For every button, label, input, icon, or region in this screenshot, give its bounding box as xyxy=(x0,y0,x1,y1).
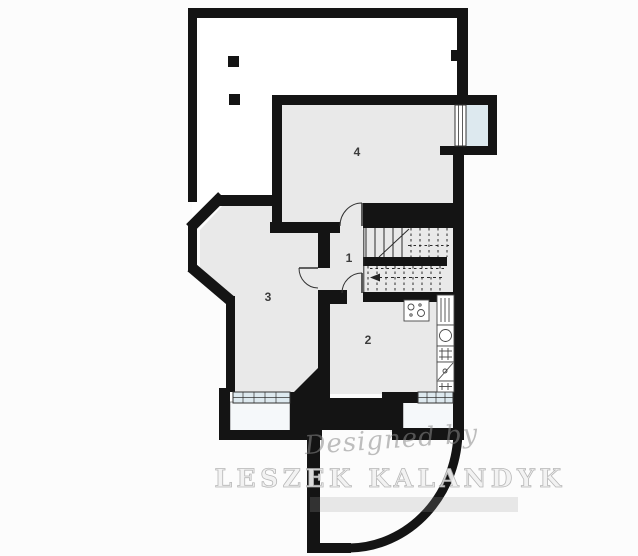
wall-room4-left xyxy=(272,95,282,222)
wall-notch xyxy=(451,50,457,61)
wall-right-lower xyxy=(453,146,464,436)
terrace-post-1 xyxy=(228,56,239,67)
room-label-1: 1 xyxy=(346,251,353,265)
dishwasher-icon xyxy=(437,362,454,381)
cabinet-icon xyxy=(437,381,454,392)
wall-hallway-bottom-stub xyxy=(318,290,347,304)
hob-icon xyxy=(437,346,454,362)
room-label-2: 2 xyxy=(365,333,372,347)
window-room4-right xyxy=(455,105,466,146)
sink-icon xyxy=(437,325,454,346)
window-well-left xyxy=(230,402,290,431)
watermark-band xyxy=(310,497,518,512)
wall-room4-top xyxy=(272,95,457,105)
watermark-author: LESZEK KALANDYK xyxy=(214,464,565,493)
wall-hallway-top xyxy=(270,222,340,233)
wall-top xyxy=(188,8,468,18)
terrace-post-2 xyxy=(229,94,240,105)
wall-hallway-left xyxy=(318,233,330,268)
room-label-4: 4 xyxy=(354,145,361,159)
wall-bottom-horizontal xyxy=(307,543,351,553)
room-label-3: 3 xyxy=(265,290,272,304)
stove-icon xyxy=(404,300,429,321)
niche-interior xyxy=(466,105,488,146)
wall-room2-bottom-right xyxy=(382,392,418,403)
floor-plan-page: 1 2 3 4 Designed by LESZEK KALANDYK xyxy=(0,0,638,556)
wall-right-upper xyxy=(457,8,468,105)
wall-niche-bottom xyxy=(440,146,497,155)
wall-left xyxy=(188,8,197,202)
wall-stair-mid-landing xyxy=(363,257,447,266)
room-4-floor xyxy=(277,100,457,205)
floor-plan-drawing: 1 2 3 4 Designed by LESZEK KALANDYK xyxy=(0,0,638,556)
wall-room3-left xyxy=(226,296,235,392)
counter-unit-icon xyxy=(437,295,454,325)
wall-stair-top xyxy=(363,203,457,228)
